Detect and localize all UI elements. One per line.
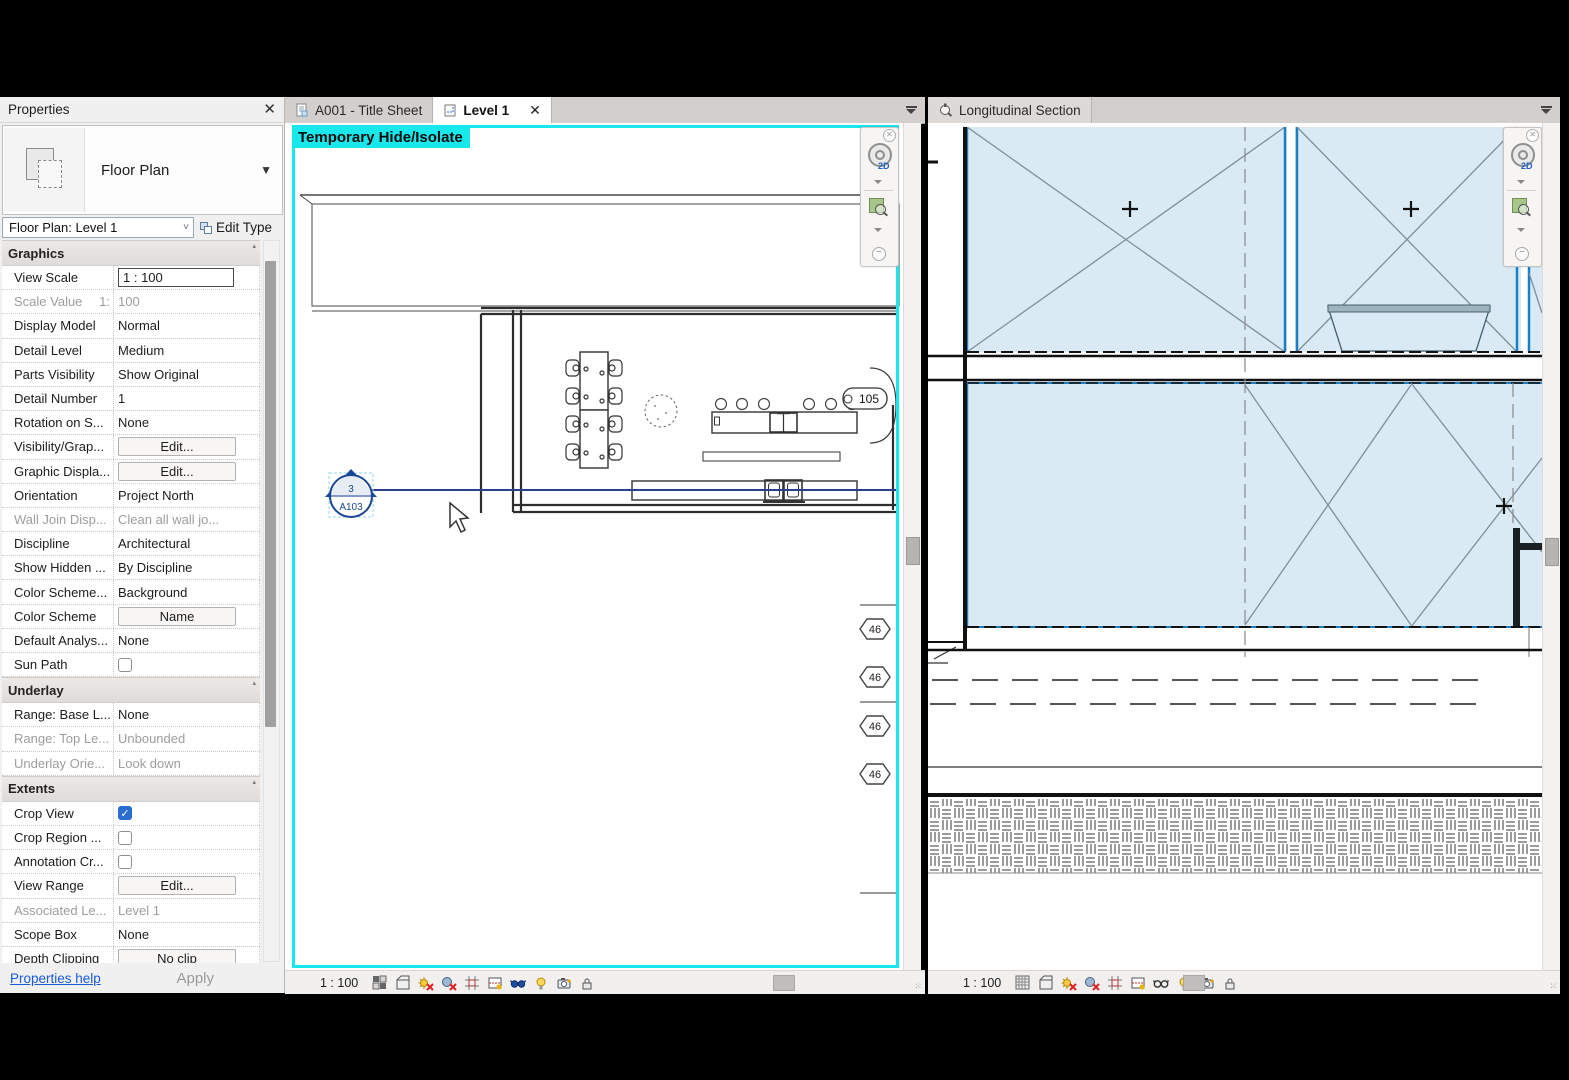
collapse-icon[interactable]: ▴: [252, 243, 256, 250]
horizontal-scrollbar-thumb[interactable]: [773, 975, 795, 991]
crop-view-icon[interactable]: [1107, 975, 1123, 991]
upper-room: [967, 127, 1542, 352]
navigation-bar: ✕ 2D −: [860, 127, 899, 267]
canopy-outline: [300, 195, 899, 311]
property-row: Depth Clipping No clip: [2, 947, 260, 963]
foundation: [928, 650, 1542, 873]
close-icon[interactable]: ✕: [1526, 129, 1539, 142]
svg-text:46: 46: [869, 672, 881, 684]
tab-list-icon[interactable]: [1532, 97, 1560, 123]
property-row: Color Scheme Name: [2, 605, 260, 629]
lock-view-icon[interactable]: [579, 975, 595, 991]
property-row: Range: Base L... None: [2, 703, 260, 727]
shadows-off-icon[interactable]: [441, 975, 457, 991]
left-tabbar: A001 - Title Sheet Level 1 ✕: [285, 97, 925, 124]
property-row: Show Hidden ... By Discipline: [2, 556, 260, 580]
svg-text:46: 46: [869, 624, 881, 636]
visual-style-icon[interactable]: [1015, 975, 1031, 991]
lock-view-icon[interactable]: [1222, 975, 1238, 991]
property-row: Associated Le... Level 1: [2, 899, 260, 923]
property-row: Scope Box None: [2, 923, 260, 947]
view-scale-field: 1 : 100: [118, 268, 234, 287]
property-row: View Scale 1 : 100: [2, 266, 260, 290]
grid-ticks: [860, 605, 899, 893]
property-grid: Graphics▴ View Scale 1 : 100 Scale Value…: [2, 240, 260, 963]
instance-selector[interactable]: Floor Plan: Level 1 ˅: [2, 217, 194, 238]
instance-selector-value: Floor Plan: Level 1: [9, 220, 117, 235]
tab-label: Level 1: [463, 103, 509, 118]
zoom-region-icon[interactable]: [1512, 198, 1527, 213]
properties-scrollbar[interactable]: [263, 240, 280, 962]
property-row: Discipline Architectural: [2, 532, 260, 556]
property-row: Color Scheme... Background: [2, 580, 260, 604]
property-row: Scale Value1: 100: [2, 290, 260, 314]
shadows-off-icon[interactable]: [1084, 975, 1100, 991]
sun-path-checkbox[interactable]: [118, 658, 132, 672]
sheet-icon: [295, 103, 309, 117]
property-row: Crop Region ...: [2, 826, 260, 850]
mouse-cursor: [450, 503, 468, 532]
collapse-icon[interactable]: −: [872, 247, 886, 261]
navigation-bar: ✕ 2D −: [1503, 127, 1542, 267]
right-view-control-bar: 1 : 100 ⁙: [928, 970, 1560, 994]
edit-type-button[interactable]: Edit Type: [200, 220, 272, 235]
floor-plan-type-icon: [4, 128, 85, 212]
visual-style-icon[interactable]: [372, 975, 388, 991]
property-row: Detail Number 1: [2, 387, 260, 411]
counters: [632, 412, 857, 502]
properties-titlebar[interactable]: Properties ✕: [0, 97, 284, 123]
floor-plan-canvas[interactable]: 3 A103 105 46 46 46 4: [285, 123, 903, 970]
svg-text:46: 46: [869, 721, 881, 733]
expand-arrow-icon[interactable]: [1517, 228, 1525, 232]
property-row: Underlay Orie... Look down: [2, 752, 260, 776]
property-row: Visibility/Grap... Edit...: [2, 435, 260, 459]
property-row: Range: Top Le... Unbounded: [2, 727, 260, 751]
sun-path-off-icon[interactable]: [418, 975, 434, 991]
collapse-icon[interactable]: −: [1515, 247, 1529, 261]
property-row: View Range Edit...: [2, 874, 260, 898]
type-selector[interactable]: Floor Plan ▼: [2, 125, 283, 215]
chevron-down-icon: ˅: [183, 222, 189, 233]
section-canvas[interactable]: ✕ 2D −: [928, 123, 1542, 970]
section-marker-icon: [938, 103, 953, 117]
scrollbar-thumb[interactable]: [265, 261, 276, 727]
crop-view-checkbox[interactable]: ✓: [118, 806, 132, 820]
visibility-graphics-edit-button[interactable]: Edit...: [118, 437, 236, 456]
depth-clipping-button[interactable]: No clip: [118, 949, 236, 963]
section-header-extents[interactable]: Extents▴: [2, 776, 260, 802]
properties-palette: Properties ✕ Floor Plan ▼ Floor Plan: Le…: [0, 97, 285, 993]
floor-plan-drawing: 3 A103 105 46 46 46 4: [285, 123, 903, 970]
edit-type-icon: [200, 222, 212, 234]
view-scale-button[interactable]: 1 : 100: [963, 976, 1001, 990]
room-tag[interactable]: 105: [843, 388, 887, 409]
round-table: [645, 395, 677, 427]
property-row: Parts Visibility Show Original: [2, 363, 260, 387]
resize-grip-icon[interactable]: ⁙: [914, 981, 922, 992]
floor-plan-icon: [443, 103, 457, 117]
apply-button[interactable]: Apply: [176, 970, 214, 987]
crop-view-icon[interactable]: [464, 975, 480, 991]
property-row: Graphic Displa... Edit...: [2, 460, 260, 484]
expand-arrow-icon[interactable]: [1517, 180, 1525, 184]
section-line[interactable]: 3 A103: [325, 469, 899, 517]
model-display-icon[interactable]: [395, 975, 411, 991]
close-icon[interactable]: ✕: [529, 102, 541, 119]
view-range-edit-button[interactable]: Edit...: [118, 876, 236, 895]
property-row: Orientation Project North: [2, 484, 260, 508]
room-walls: [481, 308, 899, 513]
close-icon[interactable]: ✕: [883, 129, 896, 142]
property-row: Crop View ✓: [2, 802, 260, 826]
tab-longitudinal-section[interactable]: Longitudinal Section: [928, 97, 1092, 123]
section-detail-number: 3: [348, 484, 354, 495]
property-row: Wall Join Disp... Clean all wall jo...: [2, 508, 260, 532]
zoom-region-icon[interactable]: [869, 198, 884, 213]
color-scheme-button[interactable]: Name: [118, 607, 236, 626]
floor-slab: [928, 352, 1542, 380]
collapse-icon[interactable]: ▴: [252, 680, 256, 687]
property-row: Default Analys... None: [2, 629, 260, 653]
property-row: Annotation Cr...: [2, 850, 260, 874]
svg-text:46: 46: [869, 769, 881, 781]
property-row: Detail Level Medium: [2, 339, 260, 363]
view-scale-button[interactable]: 1 : 100: [320, 976, 358, 990]
show-crop-region-icon[interactable]: [1130, 975, 1146, 991]
type-selector-label: Floor Plan: [86, 162, 260, 179]
crop-region-visible-checkbox[interactable]: [118, 831, 132, 845]
expand-arrow-icon[interactable]: [874, 228, 882, 232]
sun-path-off-icon[interactable]: [1061, 975, 1077, 991]
temporary-hide-isolate-icon[interactable]: [510, 975, 526, 991]
tab-list-icon[interactable]: [897, 97, 925, 123]
tab-label: A001 - Title Sheet: [315, 103, 422, 118]
scrollbar-thumb[interactable]: [906, 537, 920, 565]
model-display-icon[interactable]: [1038, 975, 1054, 991]
left-vertical-scrollbar[interactable]: [903, 123, 921, 970]
lower-room: [967, 383, 1542, 627]
bar-stools: [716, 399, 858, 410]
horizontal-scrollbar-thumb[interactable]: [1183, 975, 1205, 991]
temporary-hide-isolate-banner: Temporary Hide/Isolate: [294, 128, 470, 148]
resize-grip-icon[interactable]: ⁙: [1549, 981, 1557, 992]
edit-type-label: Edit Type: [216, 220, 272, 235]
revit-window: Properties ✕ Floor Plan ▼ Floor Plan: Le…: [0, 0, 1569, 1080]
collapse-icon[interactable]: ▴: [252, 779, 256, 786]
close-icon[interactable]: ✕: [263, 102, 276, 117]
analytical-model-icon[interactable]: [556, 975, 572, 991]
tab-a001-title-sheet[interactable]: A001 - Title Sheet: [285, 97, 433, 123]
annotation-crop-checkbox[interactable]: [118, 855, 132, 869]
section-sheet-number: A103: [339, 502, 363, 513]
chevron-down-icon[interactable]: ▼: [260, 163, 282, 177]
property-row: Display Model Normal: [2, 314, 260, 338]
property-row: Rotation on S... None: [2, 411, 260, 435]
scrollbar-thumb[interactable]: [1545, 538, 1559, 566]
reveal-hidden-elements-icon[interactable]: [533, 975, 549, 991]
show-crop-region-icon[interactable]: [487, 975, 503, 991]
right-tabbar: Longitudinal Section: [928, 97, 1560, 124]
properties-help-link[interactable]: Properties help: [10, 971, 101, 986]
tab-level-1[interactable]: Level 1 ✕: [433, 97, 552, 123]
section-header-underlay[interactable]: Underlay▴: [2, 677, 260, 703]
property-row: Sun Path: [2, 653, 260, 677]
temporary-hide-isolate-icon[interactable]: [1153, 975, 1169, 991]
properties-title: Properties: [8, 102, 70, 117]
section-drawing: [928, 123, 1542, 970]
svg-text:105: 105: [859, 392, 879, 406]
left-view-control-bar: 1 : 100 ⁙: [285, 970, 925, 994]
graphic-display-edit-button[interactable]: Edit...: [118, 462, 236, 481]
right-vertical-scrollbar[interactable]: [1542, 123, 1560, 970]
expand-arrow-icon[interactable]: [874, 180, 882, 184]
section-header-graphics[interactable]: Graphics▴: [2, 240, 260, 266]
tab-label: Longitudinal Section: [959, 103, 1081, 118]
